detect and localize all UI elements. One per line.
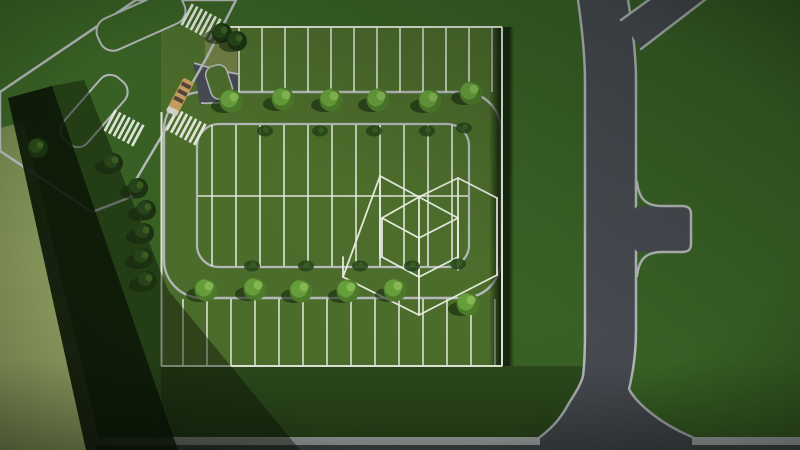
site-plan-render	[0, 0, 800, 450]
vignette	[0, 0, 800, 450]
site-plan-canvas	[0, 0, 800, 450]
